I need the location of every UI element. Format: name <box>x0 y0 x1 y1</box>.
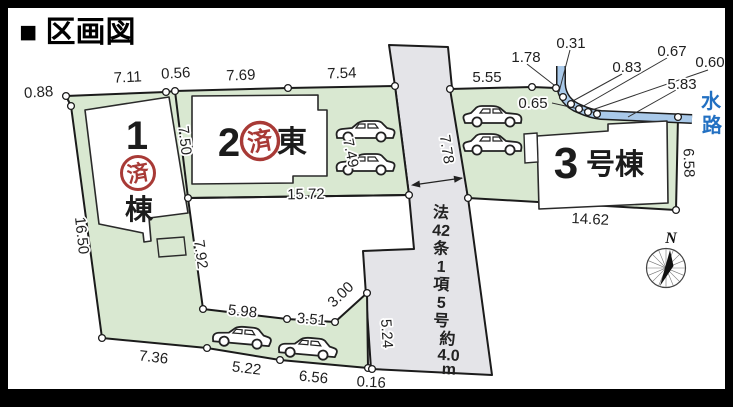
dimension-label: 5.98 <box>227 302 258 322</box>
building-number: 1 <box>126 114 148 158</box>
building-label-suffix: 棟 <box>125 194 154 225</box>
dimension-label: 7.36 <box>138 347 169 367</box>
road-char: 42 <box>432 222 451 240</box>
dimension-label: 7.69 <box>226 66 256 84</box>
dimension-label: 5.24 <box>377 319 396 349</box>
dimension-label: 5.22 <box>231 358 262 378</box>
road-char: 条 <box>432 238 451 258</box>
dimension-label: 1.78 <box>511 49 540 66</box>
dimension-label: 0.56 <box>161 64 191 83</box>
dimension-label: 0.88 <box>24 83 54 102</box>
sold-stamp-icon: 済 <box>242 123 279 160</box>
road-char: 号 <box>433 311 450 330</box>
dimension-label: 0.60 <box>695 54 724 71</box>
road-char: 項 <box>433 275 451 294</box>
waterway-char: 路 <box>702 113 723 137</box>
road-char: 法 <box>433 202 450 222</box>
page-title: ■ 区画図 <box>19 16 135 49</box>
road-char: 5 <box>436 295 446 312</box>
building-2-label: 2 東 済 <box>218 121 307 165</box>
dimension-label: 7.11 <box>113 68 142 86</box>
compass-north-label: N <box>664 230 678 247</box>
building-number: 2 <box>218 121 240 165</box>
dimension-label: 6.56 <box>298 368 329 388</box>
plot-map: 0.88 7.11 0.56 7.69 7.54 5.55 1.78 0.31 … <box>0 0 733 407</box>
road-char: 1 <box>436 259 446 276</box>
dimension-label: 0.65 <box>518 95 547 112</box>
building-1-annex <box>157 237 186 257</box>
building-3-porch <box>524 133 538 163</box>
dimension-label: 3.51 <box>296 310 327 329</box>
road-char: 約 <box>439 329 456 349</box>
dimension-label: 0.31 <box>556 35 585 52</box>
waterway-char: 水 <box>701 90 722 113</box>
building-label-suffix: 東 <box>277 126 307 159</box>
sold-stamp-icon: 済 <box>122 157 155 190</box>
road-char: m <box>441 361 456 379</box>
dimension-label: 0.67 <box>657 43 686 60</box>
plot-map-canvas: 0.88 7.11 0.56 7.69 7.54 5.55 1.78 0.31 … <box>0 0 733 407</box>
dimension-label: 7.54 <box>327 64 357 82</box>
dimension-label: 0.83 <box>612 59 641 76</box>
building-number: 3 <box>554 139 578 188</box>
dimension-label: 0.16 <box>356 373 386 392</box>
dimension-label: 14.62 <box>571 210 609 229</box>
building-label-suffix: 号棟 <box>586 148 645 181</box>
dimension-label: 15.72 <box>287 186 325 204</box>
dimension-label: 5.55 <box>472 69 501 86</box>
dimension-label: 7.50 <box>174 125 194 156</box>
dimension-label: 5.83 <box>667 76 696 93</box>
dimension-label: 6.58 <box>679 148 697 178</box>
